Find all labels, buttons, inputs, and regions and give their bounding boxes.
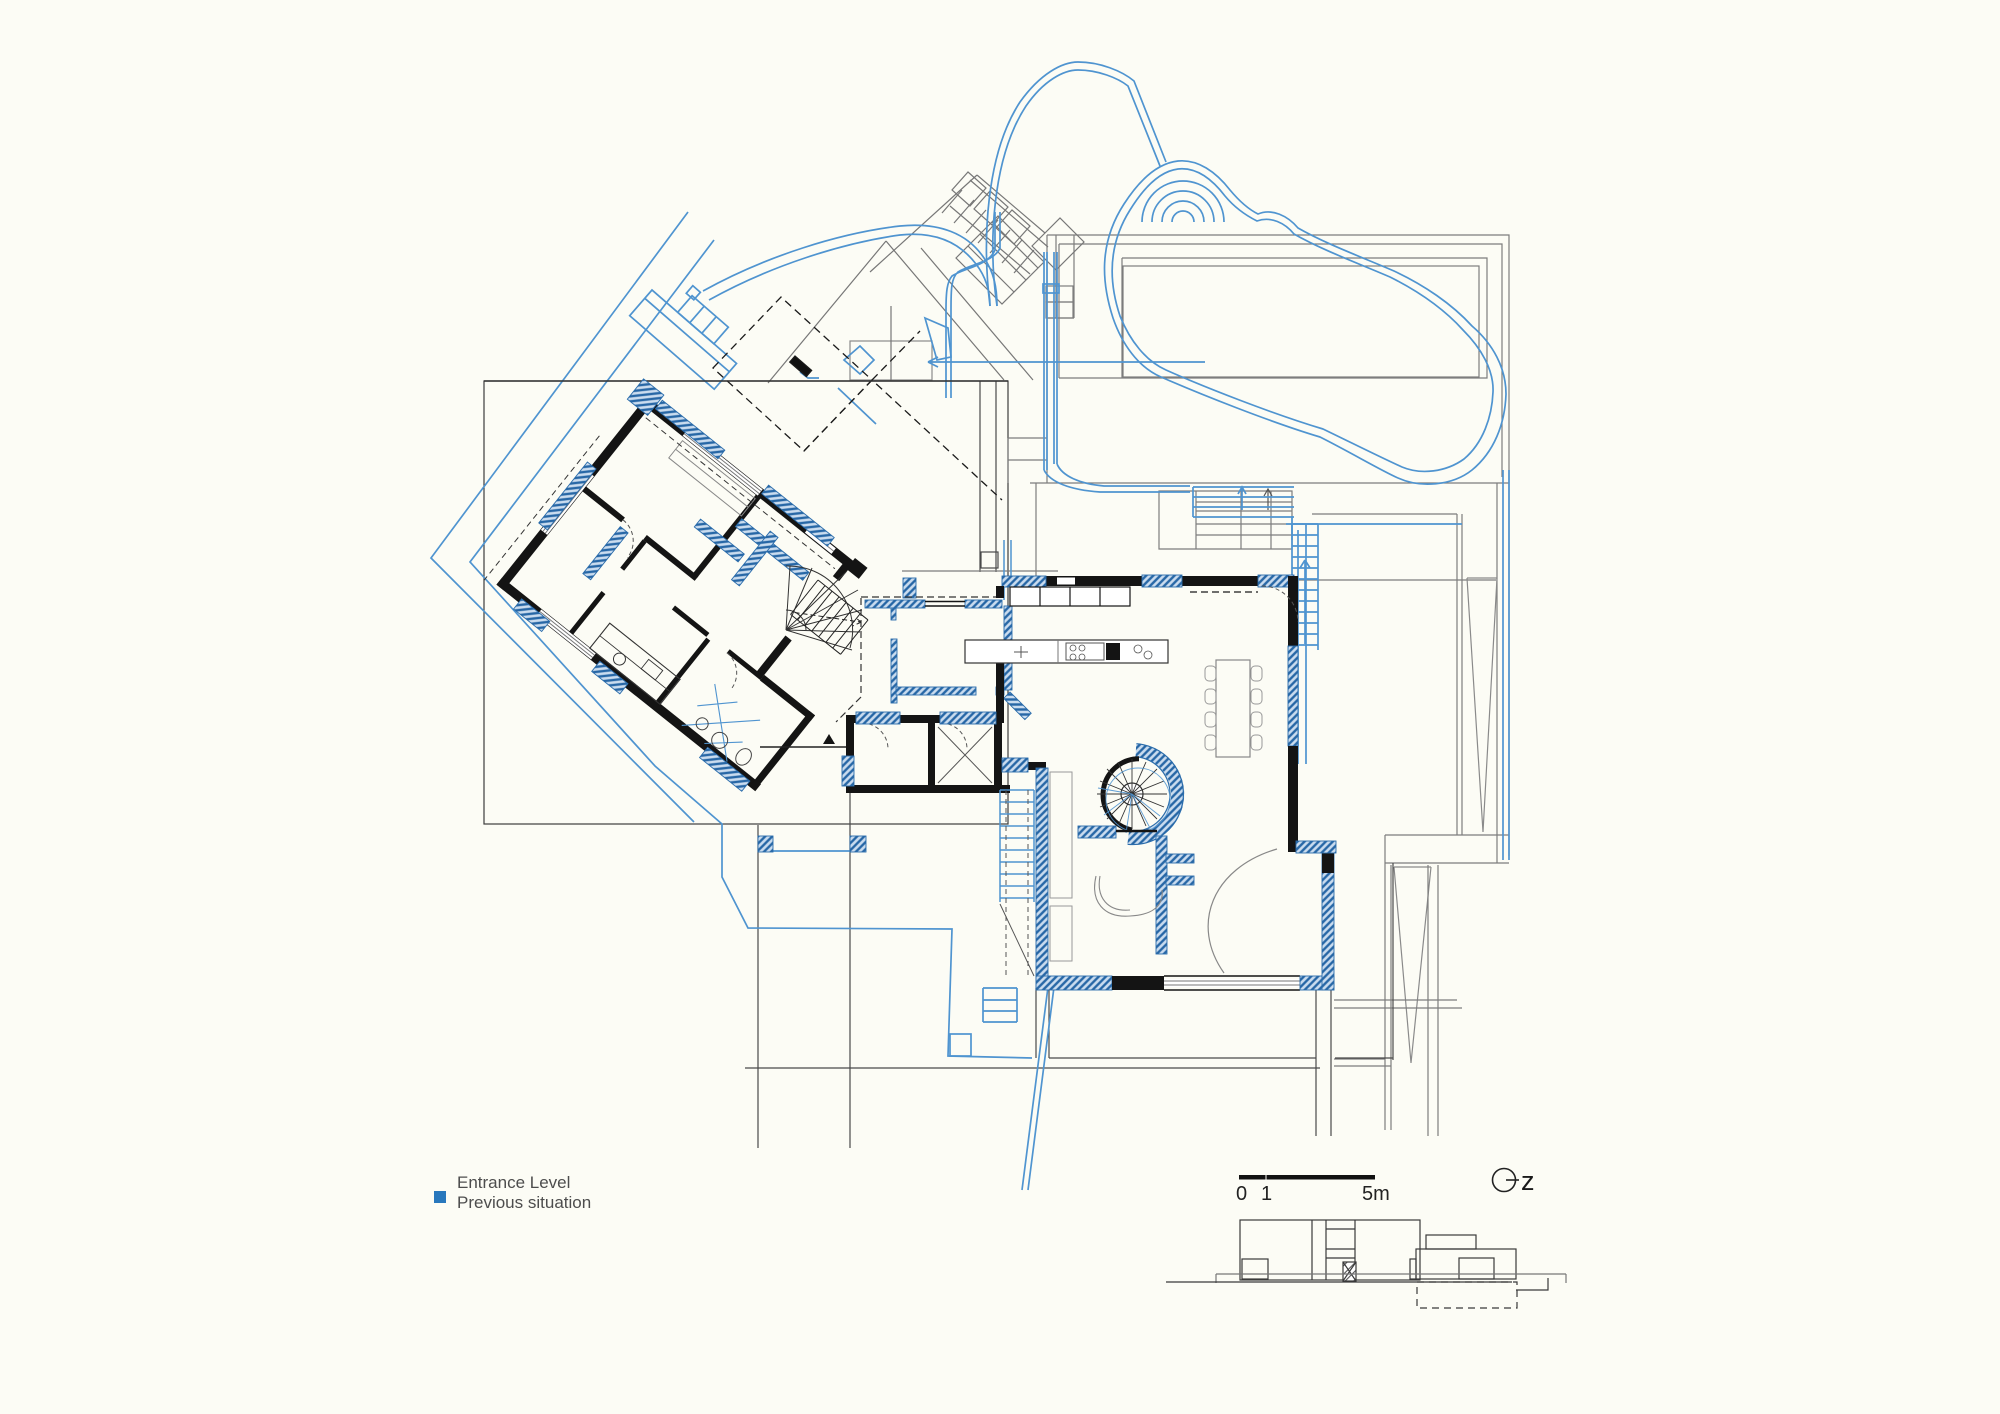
svg-text:Previous situation: Previous situation xyxy=(457,1193,591,1212)
svg-text:Entrance Level: Entrance Level xyxy=(457,1173,570,1192)
svg-text:5m: 5m xyxy=(1362,1183,1390,1205)
svg-text:z: z xyxy=(1521,1166,1535,1196)
svg-text:1: 1 xyxy=(1261,1183,1272,1205)
svg-text:0: 0 xyxy=(1236,1183,1247,1205)
